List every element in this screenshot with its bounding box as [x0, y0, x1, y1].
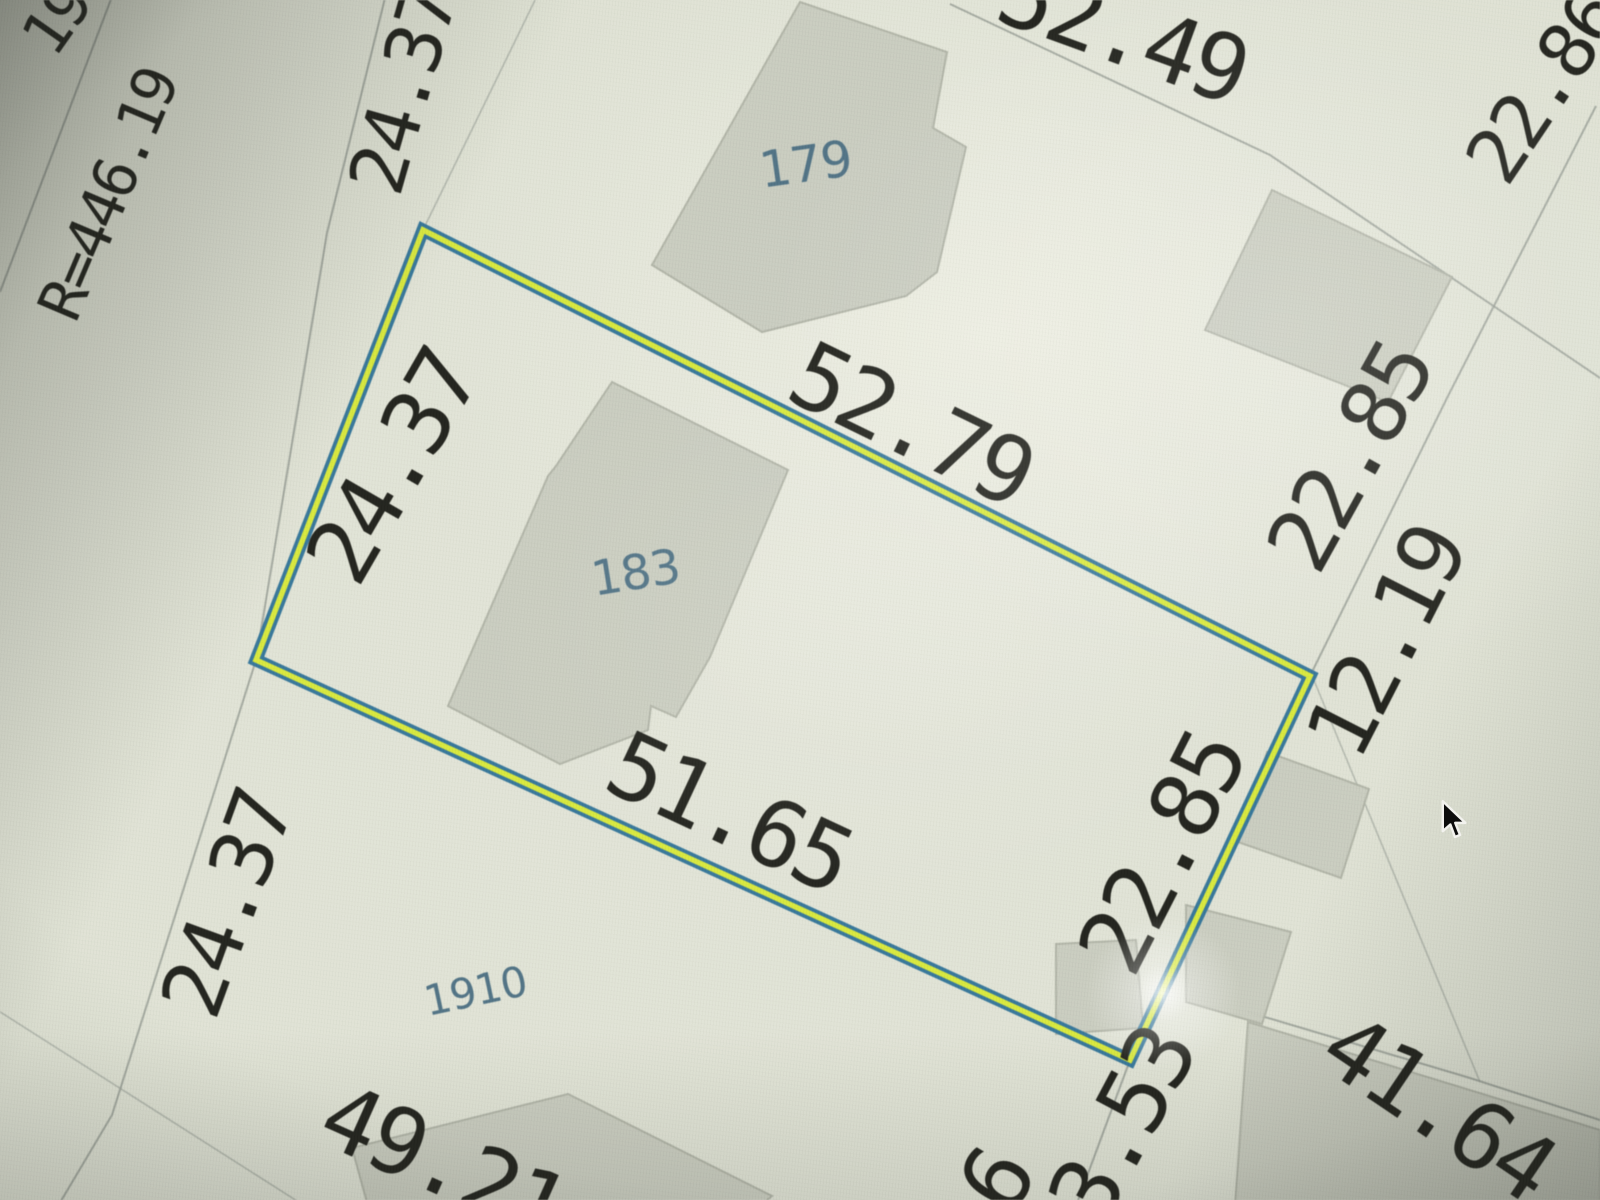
map-viewport: 19R=446.1924.3752.4922.8624.3752.7922.85…: [0, 0, 1600, 1200]
parcel-number-label: 1910: [420, 956, 531, 1025]
dimension-label: 52.49: [984, 0, 1259, 126]
dimension-label: 19: [7, 0, 106, 68]
dimension-label: 24.37: [286, 333, 501, 601]
cadastral-map[interactable]: 19R=446.1924.3752.4922.8624.3752.7922.85…: [0, 0, 1600, 1200]
lot-line-south-west: [0, 1008, 352, 1200]
dimension-label: 52.79: [773, 321, 1048, 529]
building-footprint[interactable]: [1186, 905, 1291, 1024]
dimension-label: R=446.19: [25, 59, 193, 330]
dimension-label: 22.86: [1448, 0, 1600, 199]
dimension-label: 24.37: [331, 0, 474, 204]
dimension-label: 24.37: [142, 778, 313, 1029]
dimension-label: 3.53: [1028, 1010, 1218, 1200]
dimension-label: 51.65: [591, 710, 866, 914]
